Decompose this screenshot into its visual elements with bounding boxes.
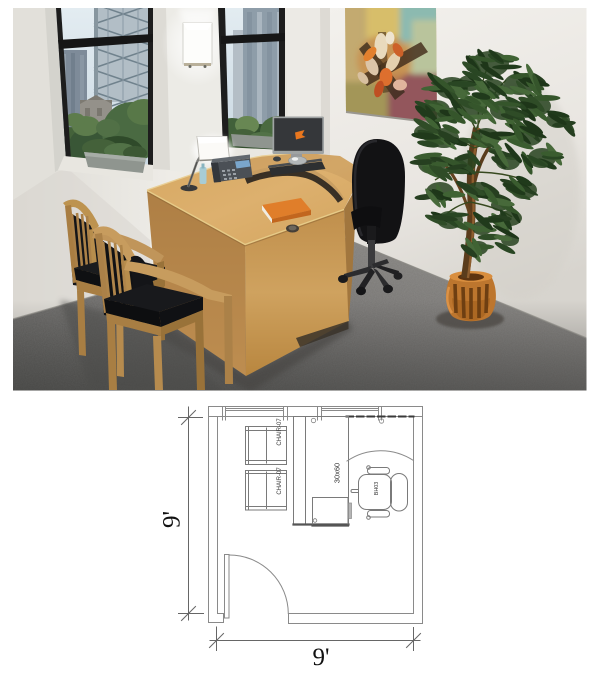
svg-text:CHAIR-07: CHAIR-07 [277,467,283,495]
svg-text:BH03: BH03 [374,482,380,496]
svg-text:CHAIR-07: CHAIR-07 [277,418,283,446]
svg-text:9': 9' [159,511,186,528]
svg-text:9': 9' [312,644,329,671]
svg-text:30x60: 30x60 [333,463,342,483]
